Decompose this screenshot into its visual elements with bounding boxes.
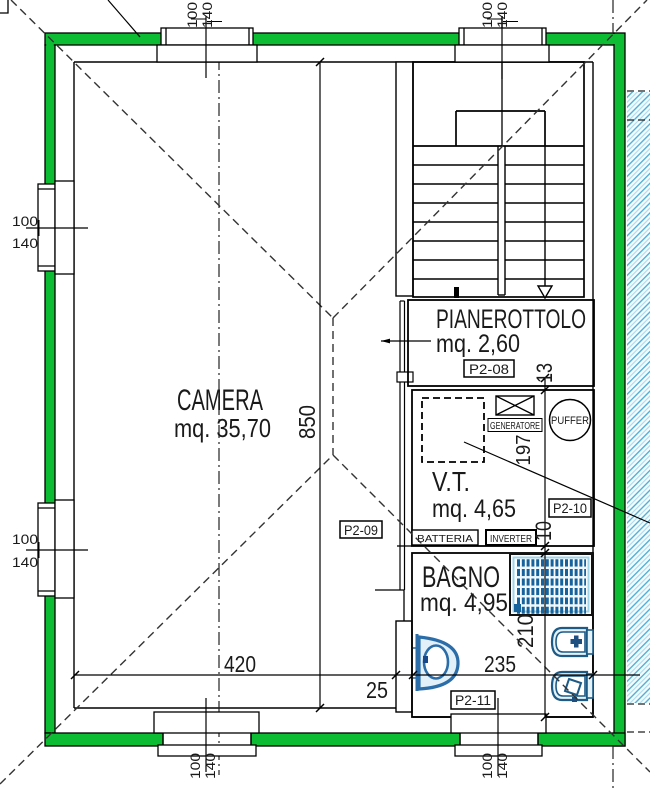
svg-text:235: 235 — [484, 651, 516, 677]
svg-text:P2-10: P2-10 — [553, 500, 587, 516]
svg-text:140: 140 — [199, 2, 215, 28]
svg-text:100: 100 — [479, 2, 495, 28]
svg-text:BATTERIA: BATTERIA — [417, 533, 473, 545]
svg-text:INVERTER: INVERTER — [490, 533, 532, 545]
svg-text:140: 140 — [494, 753, 510, 779]
svg-text:140: 140 — [494, 2, 510, 28]
svg-text:100: 100 — [184, 2, 200, 28]
svg-text:PUFFER: PUFFER — [551, 415, 589, 427]
svg-text:P2-08: P2-08 — [469, 361, 509, 377]
svg-text:100: 100 — [12, 531, 38, 547]
svg-text:197: 197 — [513, 435, 535, 466]
svg-text:10: 10 — [531, 521, 556, 541]
svg-text:mq. 2,60: mq. 2,60 — [436, 330, 520, 358]
svg-text:100: 100 — [187, 753, 203, 779]
svg-text:P2-11: P2-11 — [455, 692, 491, 708]
svg-text:mq. 4,95: mq. 4,95 — [420, 589, 508, 617]
svg-text:140: 140 — [202, 753, 218, 779]
svg-text:mq. 35,70: mq. 35,70 — [174, 413, 271, 443]
svg-text:420: 420 — [224, 651, 256, 677]
svg-text:210: 210 — [513, 614, 538, 648]
svg-text:mq. 4,65: mq. 4,65 — [432, 495, 516, 523]
svg-text:140: 140 — [12, 554, 38, 570]
svg-text:V.T.: V.T. — [432, 466, 470, 497]
svg-text:100: 100 — [12, 213, 38, 229]
svg-text:P2-09: P2-09 — [344, 522, 378, 538]
svg-text:140: 140 — [12, 235, 38, 251]
svg-text:GENERATORE: GENERATORE — [490, 421, 540, 432]
svg-text:850: 850 — [294, 405, 320, 439]
svg-text:25: 25 — [366, 677, 388, 703]
svg-text:100: 100 — [479, 753, 495, 779]
svg-text:13: 13 — [532, 363, 557, 383]
